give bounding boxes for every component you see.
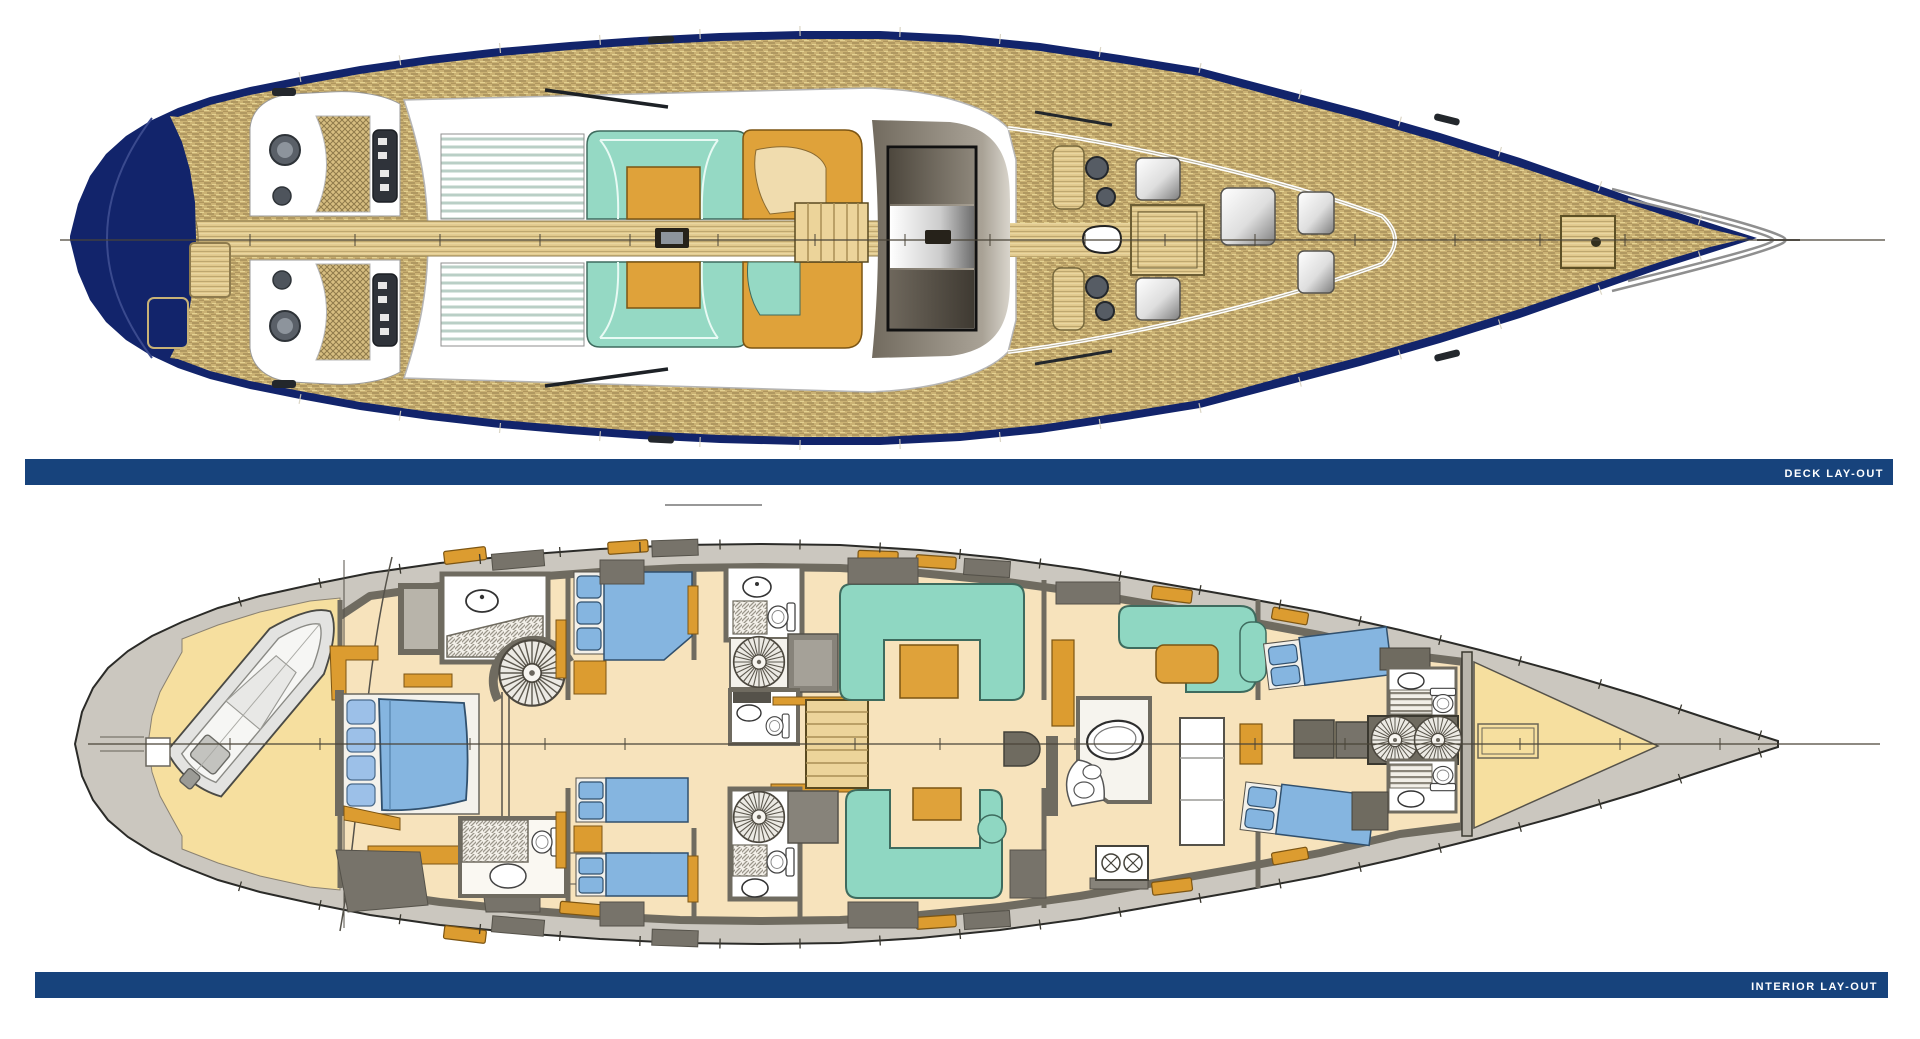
svg-text:INTERIOR LAY-OUT: INTERIOR LAY-OUT <box>1751 981 1878 993</box>
svg-text:DECK LAY-OUT: DECK LAY-OUT <box>1785 468 1885 480</box>
